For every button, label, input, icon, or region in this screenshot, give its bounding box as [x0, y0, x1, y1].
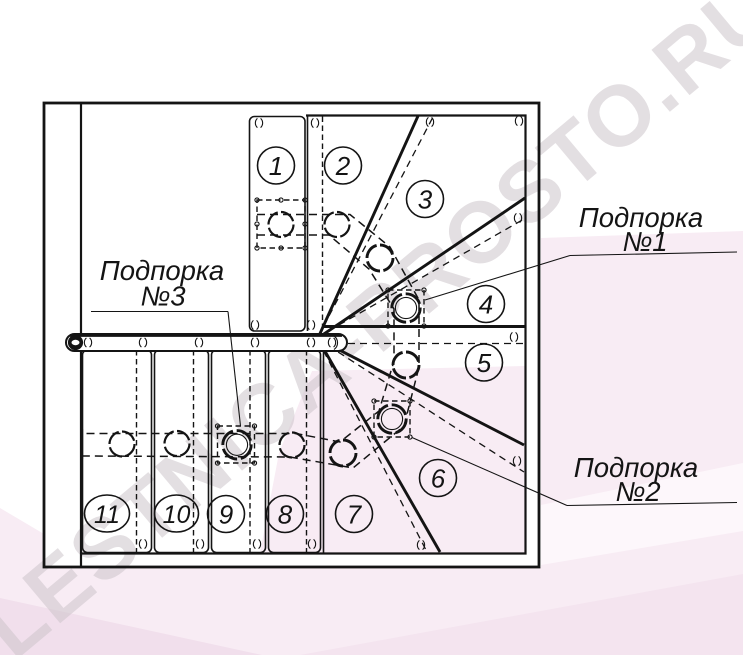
step-number-1: 1 — [269, 151, 283, 181]
step-marker-2: 2 — [325, 147, 362, 184]
screw-icon — [253, 539, 260, 548]
step-number-9: 9 — [219, 500, 233, 530]
step-marker-1: 1 — [258, 147, 295, 184]
baluster-pole — [325, 212, 350, 237]
beam-left-cap-hole — [72, 340, 80, 345]
step-number-6: 6 — [431, 464, 446, 494]
screw-icon — [255, 118, 262, 127]
screw-icon — [510, 332, 517, 341]
step-number-8: 8 — [278, 500, 293, 530]
screw-icon — [196, 539, 203, 548]
screw-icon — [311, 118, 318, 127]
step-number-5: 5 — [477, 348, 492, 378]
step-number-10: 10 — [163, 501, 191, 529]
step-number-3: 3 — [418, 185, 433, 215]
staircase-plan-drawing: LESTNICA-PROSTO.RU — [0, 0, 743, 655]
label-podporka-1-line2: №1 — [622, 226, 667, 257]
baluster-pole — [269, 212, 294, 237]
step-marker-4: 4 — [468, 286, 505, 323]
step-marker-5: 5 — [466, 344, 503, 381]
step-number-11: 11 — [94, 501, 120, 529]
mount-square-top — [255, 198, 307, 250]
baluster-pole — [110, 432, 135, 457]
step-number-7: 7 — [347, 500, 363, 530]
screw-icon — [515, 116, 522, 125]
label-podporka-2-line2: №2 — [615, 476, 660, 507]
step-number-4: 4 — [479, 290, 493, 320]
label-podporka-3-line2: №3 — [140, 281, 186, 312]
step-marker-3: 3 — [407, 181, 444, 218]
step-number-2: 2 — [335, 151, 351, 181]
staircase-plan-screenshot: LESTNICA-PROSTO.RU — [0, 0, 743, 655]
support-beam — [66, 334, 347, 351]
screw-icon — [251, 320, 258, 329]
tread-panel-1 — [250, 117, 306, 332]
